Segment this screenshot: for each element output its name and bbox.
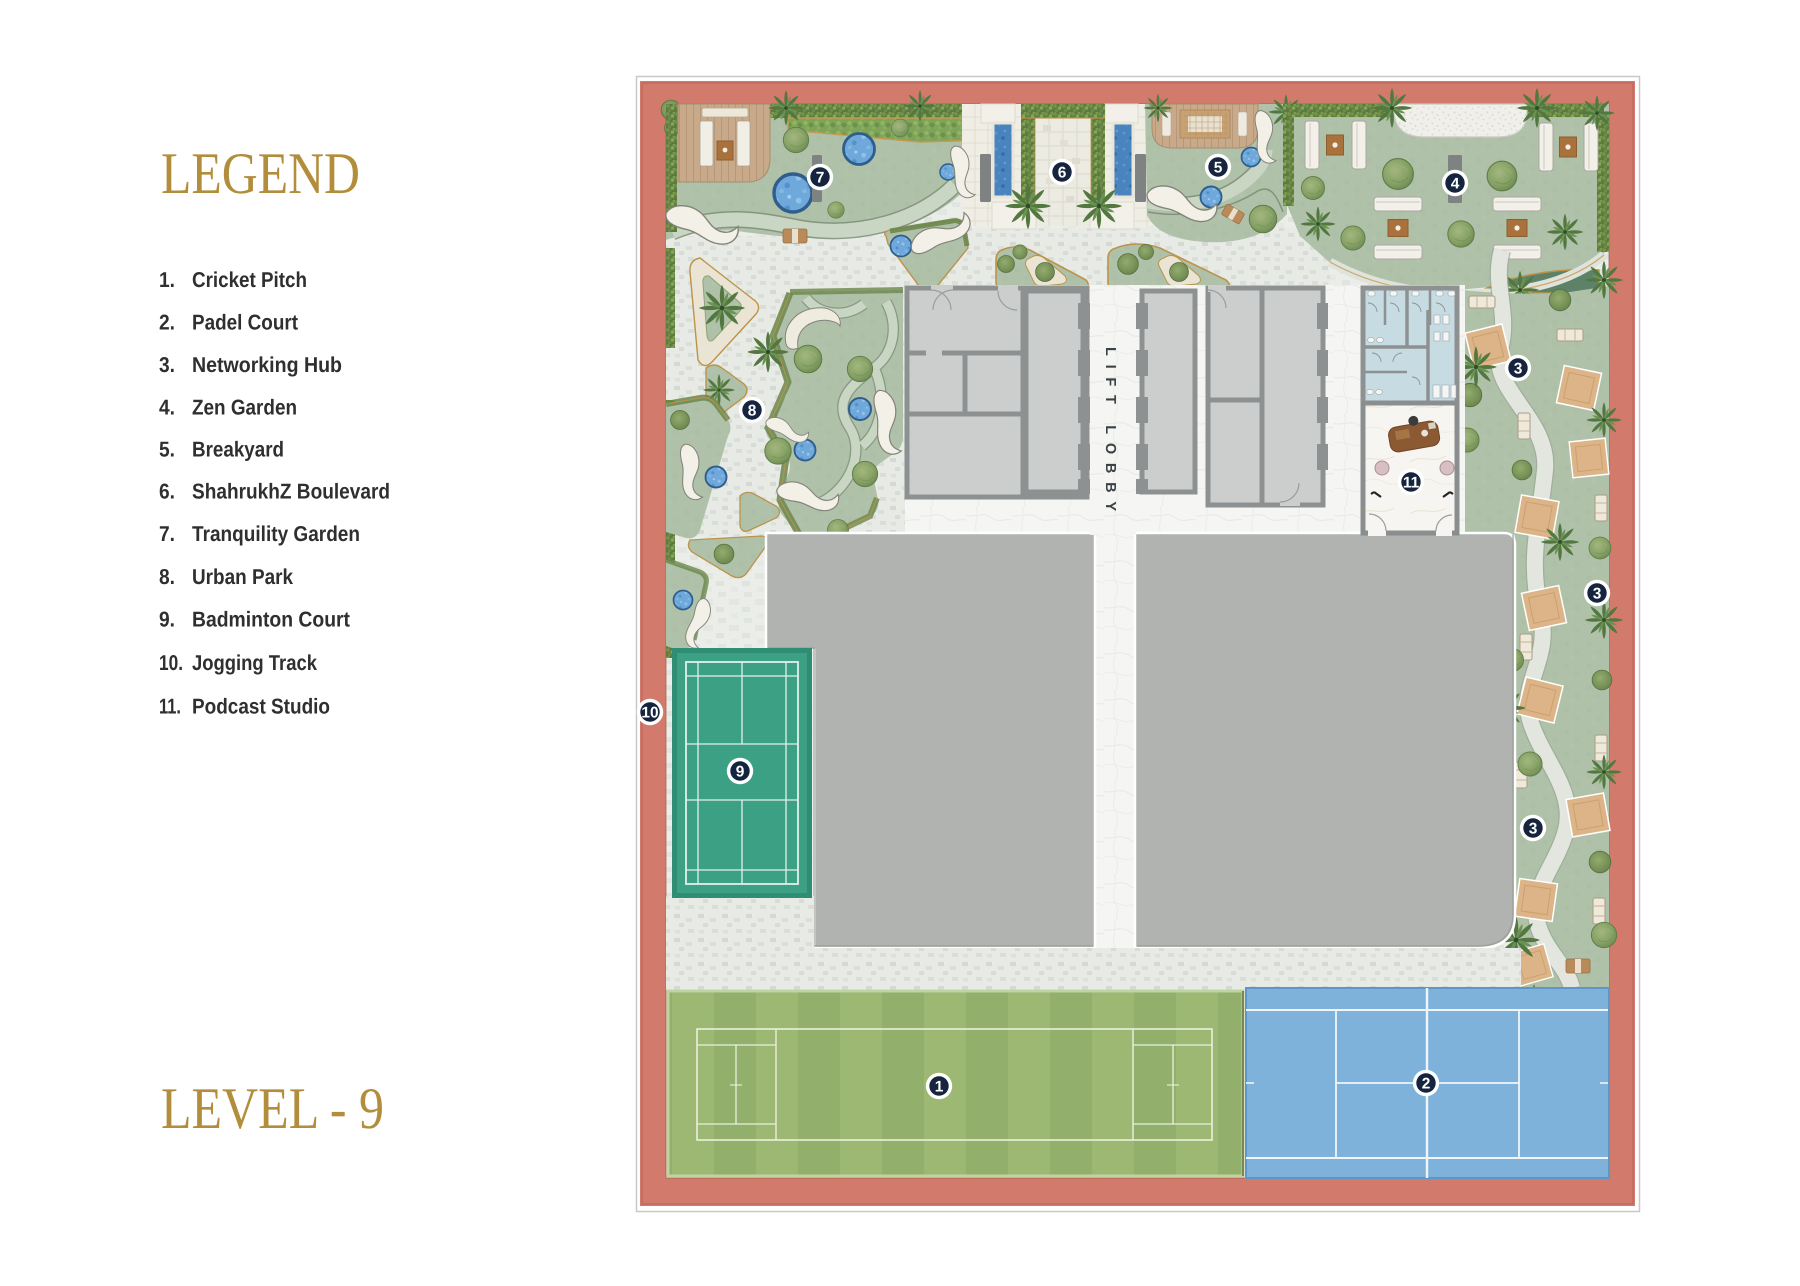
svg-text:Urban Park: Urban Park bbox=[192, 565, 293, 589]
svg-text:8: 8 bbox=[748, 403, 757, 420]
svg-text:10.: 10. bbox=[159, 651, 183, 675]
svg-text:5.: 5. bbox=[159, 438, 175, 462]
svg-text:LIFT LOBBY: LIFT LOBBY bbox=[1102, 347, 1118, 517]
svg-text:Breakyard: Breakyard bbox=[192, 438, 284, 462]
svg-text:2: 2 bbox=[1422, 1076, 1431, 1093]
svg-text:1.: 1. bbox=[159, 268, 175, 292]
svg-text:8.: 8. bbox=[159, 565, 175, 589]
svg-text:Tranquility Garden: Tranquility Garden bbox=[192, 522, 360, 546]
svg-text:3: 3 bbox=[1514, 361, 1523, 378]
svg-text:11.: 11. bbox=[159, 695, 181, 719]
svg-text:3.: 3. bbox=[159, 353, 175, 377]
svg-text:3: 3 bbox=[1593, 586, 1602, 603]
svg-text:6: 6 bbox=[1058, 165, 1067, 182]
svg-text:1: 1 bbox=[935, 1079, 944, 1096]
svg-text:Networking Hub: Networking Hub bbox=[192, 353, 342, 377]
svg-text:LEVEL - 9: LEVEL - 9 bbox=[161, 1075, 384, 1141]
svg-text:9.: 9. bbox=[159, 608, 175, 632]
svg-text:5: 5 bbox=[1214, 160, 1223, 177]
svg-text:Podcast Studio: Podcast Studio bbox=[192, 695, 330, 719]
svg-text:7.: 7. bbox=[159, 522, 175, 546]
svg-text:Jogging Track: Jogging Track bbox=[192, 651, 317, 675]
svg-text:LEGEND: LEGEND bbox=[161, 140, 360, 206]
svg-text:6.: 6. bbox=[159, 480, 175, 504]
svg-text:4.: 4. bbox=[159, 396, 175, 420]
svg-text:7: 7 bbox=[816, 170, 825, 187]
svg-text:Zen Garden: Zen Garden bbox=[192, 396, 297, 420]
svg-text:9: 9 bbox=[736, 764, 745, 781]
svg-text:Padel Court: Padel Court bbox=[192, 311, 298, 335]
svg-text:ShahrukhZ Boulevard: ShahrukhZ Boulevard bbox=[192, 480, 390, 504]
svg-text:3: 3 bbox=[1529, 821, 1538, 838]
svg-text:4: 4 bbox=[1451, 176, 1460, 193]
svg-text:10: 10 bbox=[641, 705, 658, 722]
svg-text:11: 11 bbox=[1403, 475, 1420, 492]
svg-text:2.: 2. bbox=[159, 311, 175, 335]
svg-text:Cricket Pitch: Cricket Pitch bbox=[192, 268, 307, 292]
svg-text:Badminton Court: Badminton Court bbox=[192, 608, 350, 632]
